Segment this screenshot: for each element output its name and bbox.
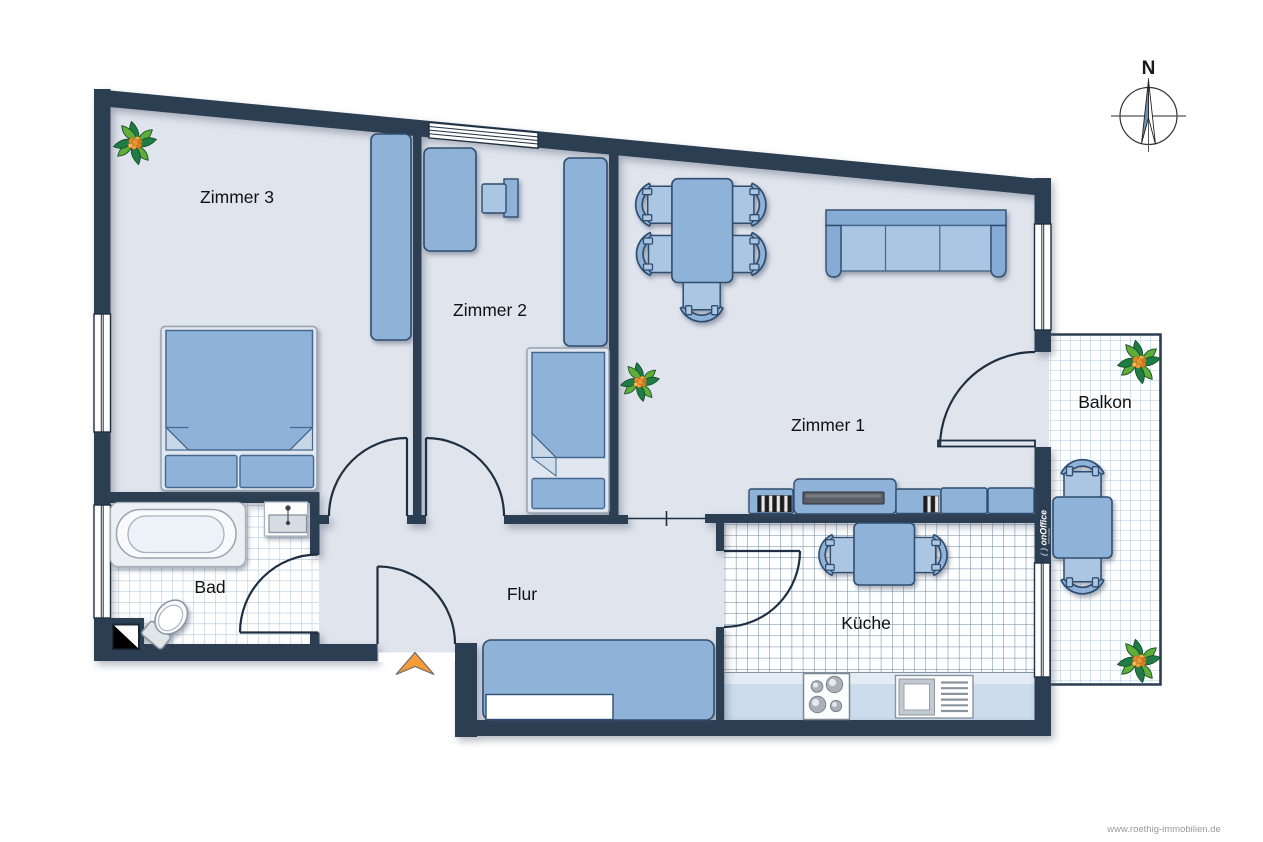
svg-text:Zimmer 1: Zimmer 1	[791, 415, 865, 435]
svg-text:Flur: Flur	[507, 584, 537, 604]
svg-text:N: N	[1142, 58, 1156, 79]
svg-text:Küche: Küche	[841, 613, 891, 633]
svg-text:Bad: Bad	[194, 577, 225, 597]
svg-text:www.roethig-immobilien.de: www.roethig-immobilien.de	[1106, 824, 1221, 835]
svg-text:Balkon: Balkon	[1078, 392, 1132, 412]
svg-text:SOFTWARE: SOFTWARE	[1047, 528, 1051, 544]
svg-text:Zimmer 2: Zimmer 2	[453, 300, 527, 320]
svg-text:( ): ( )	[1039, 548, 1049, 556]
svg-text:Zimmer 3: Zimmer 3	[200, 187, 274, 207]
